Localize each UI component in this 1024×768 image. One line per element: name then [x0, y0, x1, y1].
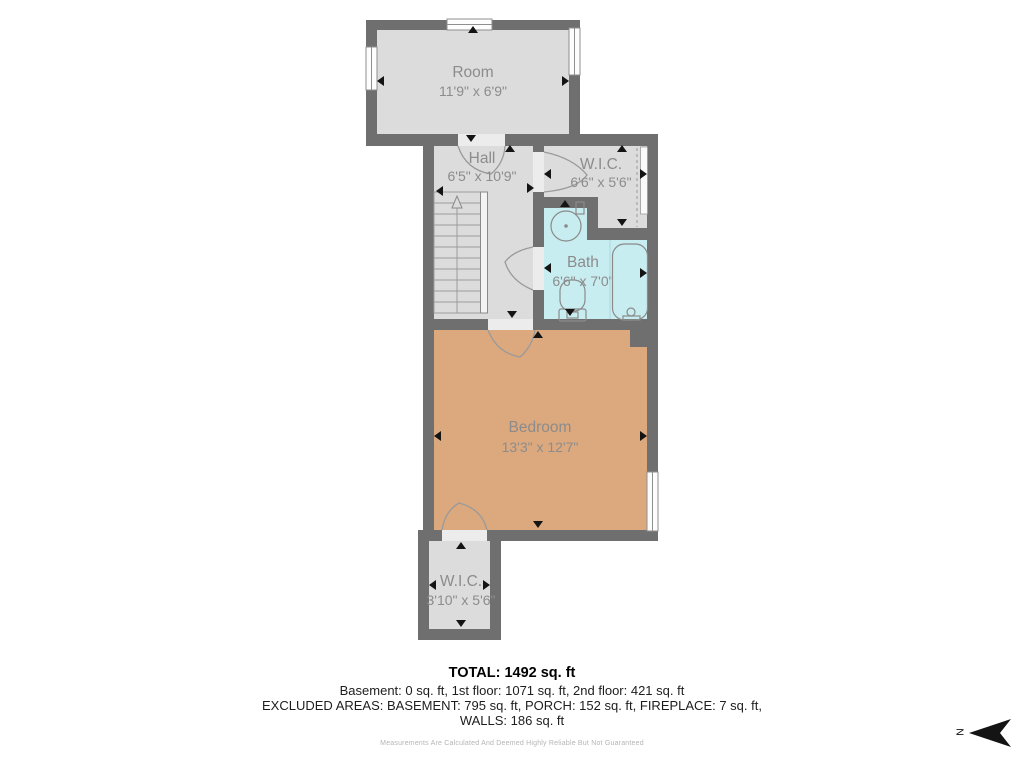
wall-room-hall-divider — [366, 134, 658, 146]
floorplan-page: Room 11'9" x 6'9" Hall 6'5" x 10'9" W.I.… — [0, 0, 1024, 768]
room-dimension: 3'10" x 5'6" — [427, 592, 496, 608]
total-area-text: TOTAL: 1492 sq. ft — [0, 664, 1024, 683]
room-dimension: 6'6" x 5'6" — [570, 174, 631, 190]
stairs-handrail — [481, 192, 488, 313]
excluded-areas-text: EXCLUDED AREAS: BASEMENT: 795 sq. ft, PO… — [0, 698, 1024, 713]
room-dimension: 6'5" x 10'9" — [448, 168, 517, 184]
wall-wic-lower-bottom — [418, 629, 501, 640]
wall-fireplace-block — [630, 330, 658, 347]
room-label: Bath — [567, 254, 599, 271]
walls-area-text: WALLS: 186 sq. ft — [0, 713, 1024, 728]
opening-bedroom — [488, 319, 533, 330]
wall-wic-lower-left — [418, 530, 429, 640]
room-dimension: 6'6" x 7'0" — [552, 273, 613, 289]
closet-shelf-strip — [641, 147, 648, 214]
room-dimension: 11'9" x 6'9" — [439, 83, 507, 99]
opening-bath — [533, 247, 544, 290]
wall-wic-upper-bottom — [597, 228, 658, 240]
opening-wic-upper — [533, 152, 544, 192]
room-label: W.I.C. — [440, 573, 482, 590]
wall-sink-alcove-right — [587, 197, 598, 240]
opening-room-hall — [458, 134, 505, 146]
disclaimer-text: Measurements Are Calculated And Deemed H… — [0, 740, 1024, 747]
room-label: Hall — [469, 150, 496, 167]
wall-bedroom-top — [423, 319, 658, 330]
floor-areas-text: Basement: 0 sq. ft, 1st floor: 1071 sq. … — [0, 683, 1024, 698]
stairs-outline — [434, 192, 484, 313]
floorplan-drawing: Room 11'9" x 6'9" Hall 6'5" x 10'9" W.I.… — [0, 0, 1024, 768]
staircase — [434, 192, 488, 313]
room-label: Room — [452, 64, 493, 81]
wall-left-outer — [423, 134, 434, 541]
room-dimension: 13'3" x 12'7" — [502, 439, 579, 455]
area-summary: TOTAL: 1492 sq. ft Basement: 0 sq. ft, 1… — [0, 664, 1024, 747]
opening-wic-lower — [442, 530, 487, 541]
room-label: Bedroom — [509, 419, 572, 436]
wall-wic-lower-right — [490, 541, 501, 640]
room-label: W.I.C. — [580, 156, 622, 173]
floor-room — [377, 30, 569, 134]
